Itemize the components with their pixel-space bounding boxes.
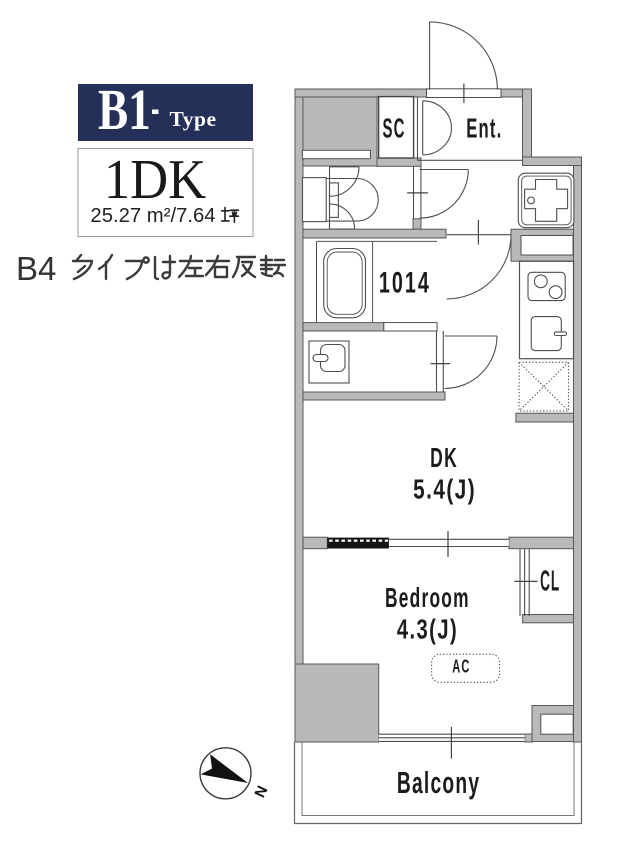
svg-text:CL: CL [540,564,560,597]
svg-text:AC: AC [452,657,470,678]
svg-text:1014: 1014 [379,267,431,300]
svg-text:4.3(J): 4.3(J) [397,615,458,646]
svg-text:1DK: 1DK [104,149,206,211]
svg-text:Ent.: Ent. [466,112,502,144]
svg-text:SC: SC [383,113,406,144]
svg-text:DK: DK [430,442,458,473]
svg-text:Balcony: Balcony [397,767,480,801]
svg-text:Bedroom: Bedroom [385,582,470,613]
svg-text:Type: Type [170,107,217,131]
svg-text:B1: B1 [98,79,151,143]
svg-text:5.4(J): 5.4(J) [413,475,476,506]
svg-text:25.27 m²/7.64: 25.27 m²/7.64 [90,205,215,227]
svg-text:B4: B4 [16,250,56,287]
